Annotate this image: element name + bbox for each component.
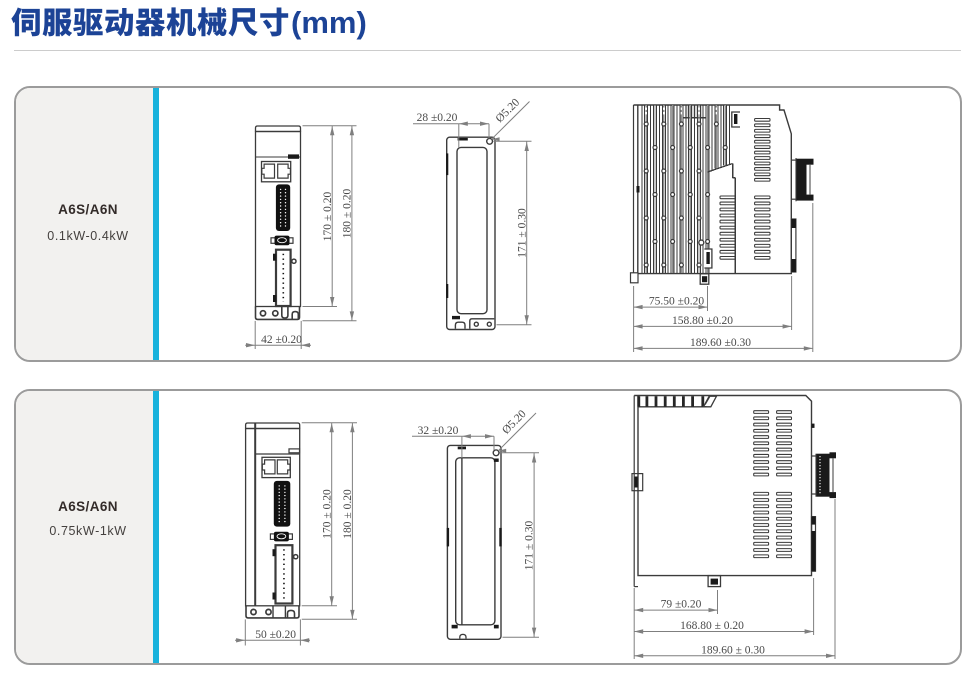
svg-text:180 ± 0.20: 180 ± 0.20 bbox=[342, 489, 354, 539]
svg-text:180 ± 0.20: 180 ± 0.20 bbox=[342, 189, 354, 239]
svg-text:168.80 ± 0.20: 168.80 ± 0.20 bbox=[680, 620, 744, 632]
svg-text:42 ±0.20: 42 ±0.20 bbox=[261, 334, 302, 346]
svg-text:79 ±0.20: 79 ±0.20 bbox=[661, 599, 702, 611]
svg-text:32 ±0.20: 32 ±0.20 bbox=[418, 425, 459, 437]
svg-text:Ø5.20: Ø5.20 bbox=[494, 96, 523, 125]
svg-text:189.60 ±0.30: 189.60 ±0.30 bbox=[690, 337, 751, 349]
svg-text:50 ±0.20: 50 ±0.20 bbox=[255, 629, 296, 641]
svg-text:170 ± 0.20: 170 ± 0.20 bbox=[322, 192, 334, 242]
svg-text:158.80 ±0.20: 158.80 ±0.20 bbox=[672, 315, 733, 327]
svg-text:171 ± 0.30: 171 ± 0.30 bbox=[524, 521, 536, 571]
svg-text:75.50 ±0.20: 75.50 ±0.20 bbox=[649, 296, 704, 308]
svg-text:189.60 ± 0.30: 189.60 ± 0.30 bbox=[701, 644, 765, 656]
svg-text:171 ± 0.30: 171 ± 0.30 bbox=[516, 208, 528, 258]
svg-text:170 ± 0.20: 170 ± 0.20 bbox=[322, 489, 334, 539]
svg-text:Ø5.20: Ø5.20 bbox=[500, 408, 529, 437]
svg-text:28 ±0.20: 28 ±0.20 bbox=[417, 112, 458, 124]
